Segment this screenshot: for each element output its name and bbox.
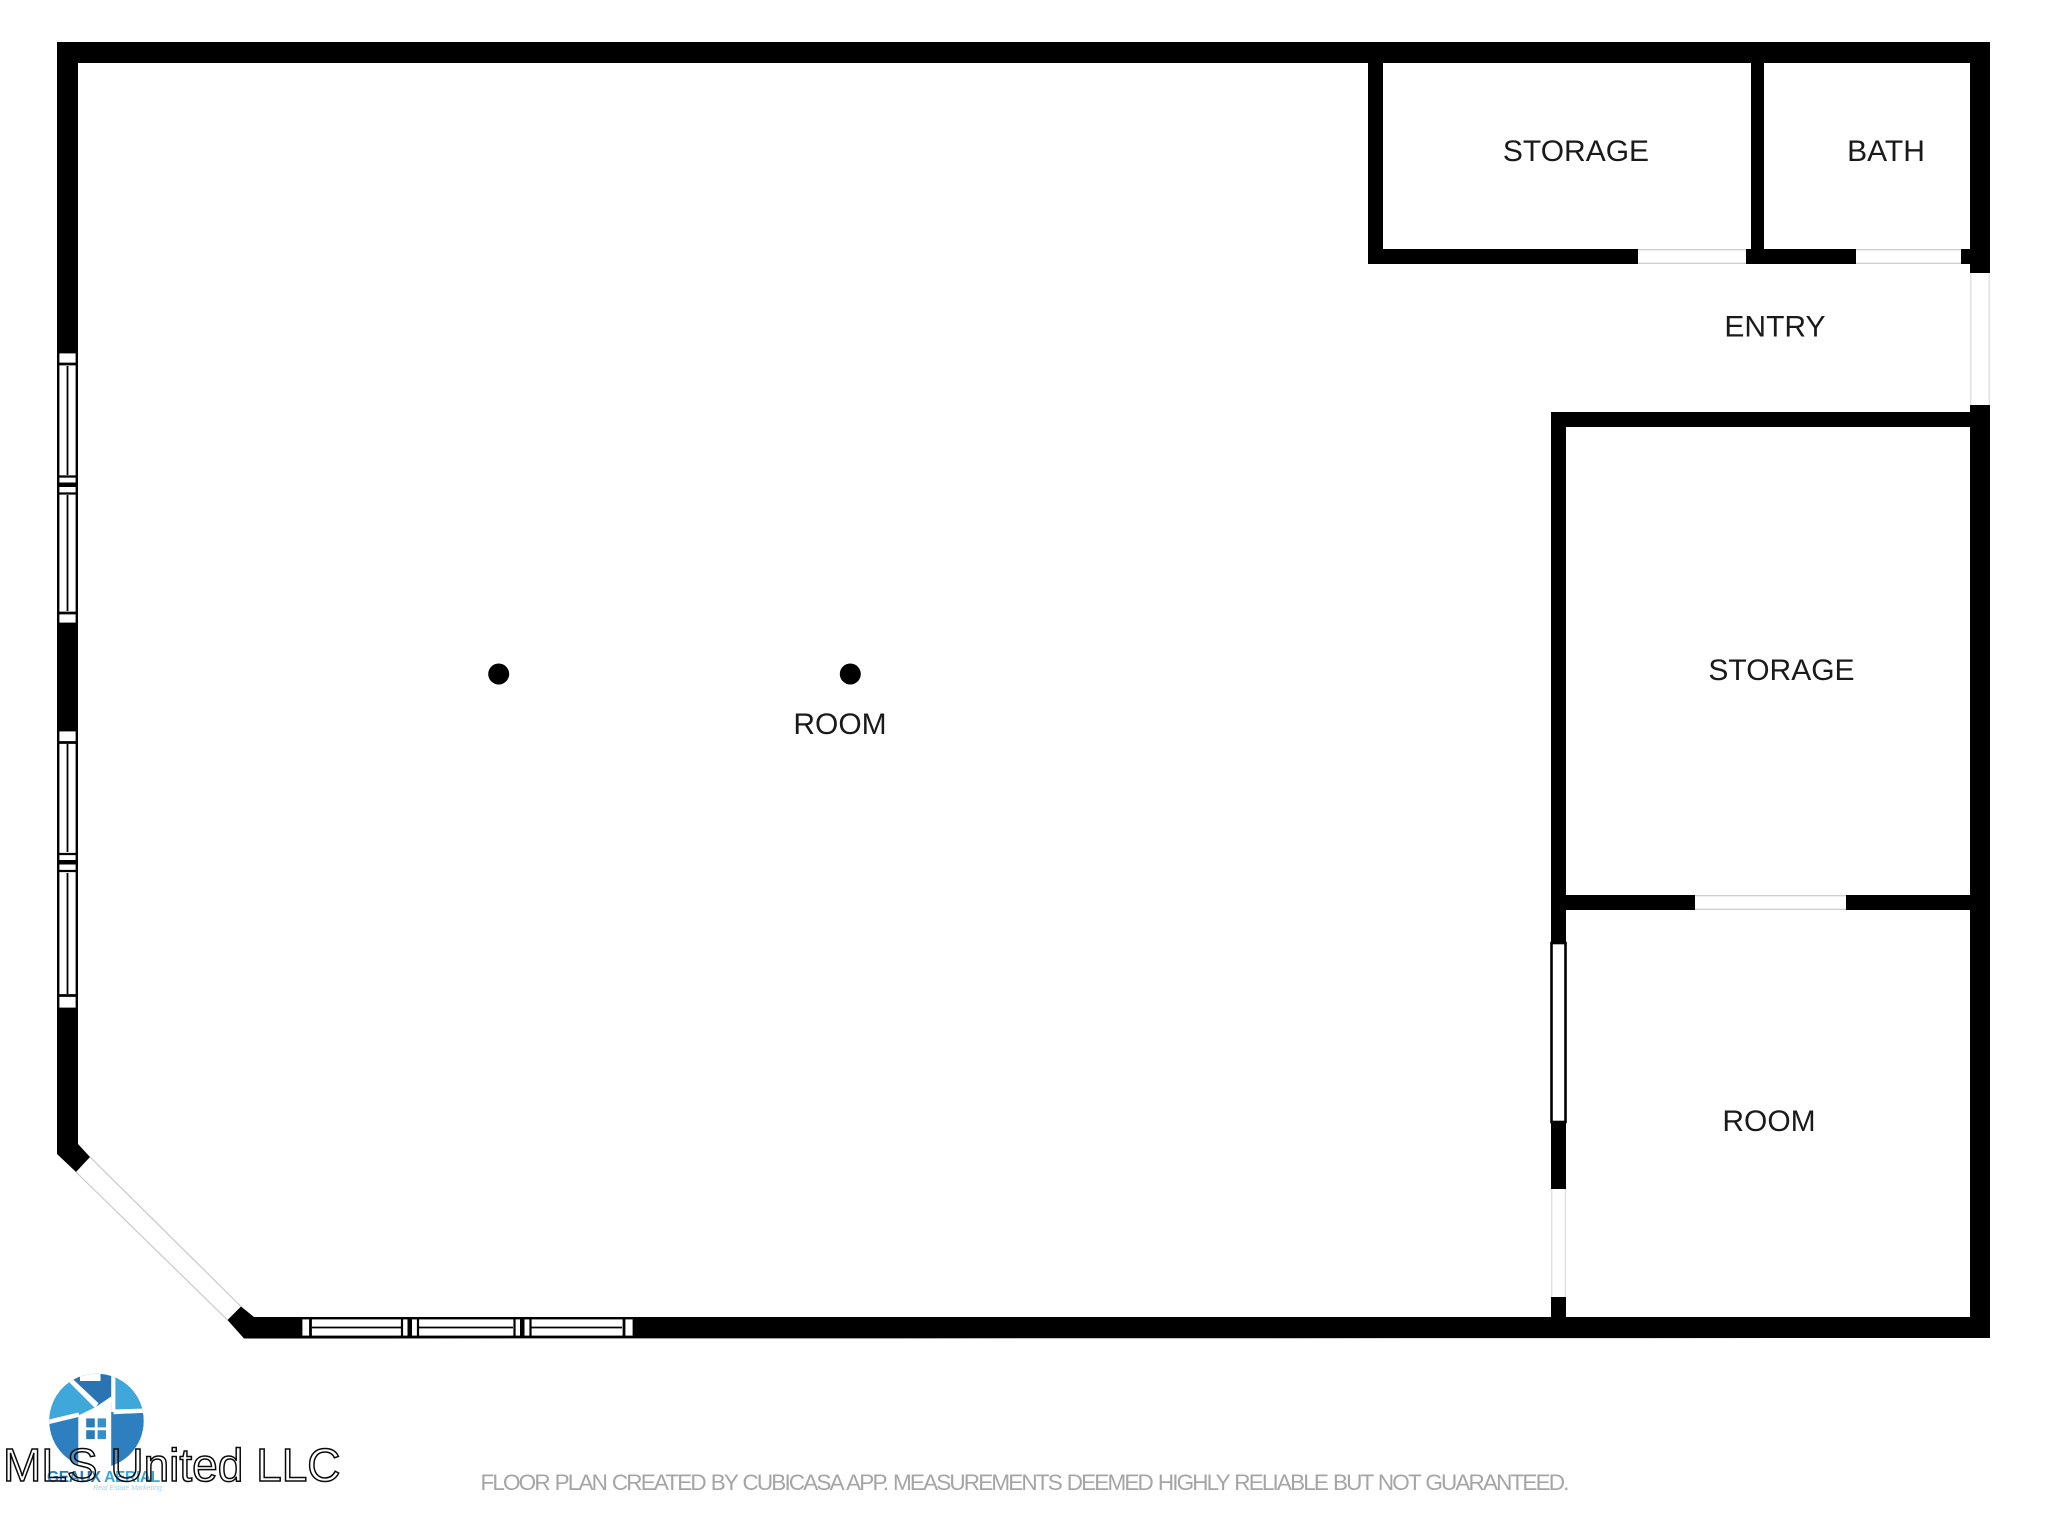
svg-text:ROOM: ROOM: [1722, 1105, 1815, 1138]
svg-text:STORAGE: STORAGE: [1503, 135, 1649, 168]
svg-text:BATH: BATH: [1847, 135, 1925, 168]
svg-text:MLS United LLC: MLS United LLC: [3, 1439, 341, 1491]
svg-text:ROOM: ROOM: [793, 708, 886, 741]
svg-text:ENTRY: ENTRY: [1724, 311, 1825, 344]
svg-text:FLOOR PLAN CREATED BY CUBICASA: FLOOR PLAN CREATED BY CUBICASA APP. MEAS…: [480, 1470, 1568, 1495]
svg-text:STORAGE: STORAGE: [1708, 654, 1854, 687]
